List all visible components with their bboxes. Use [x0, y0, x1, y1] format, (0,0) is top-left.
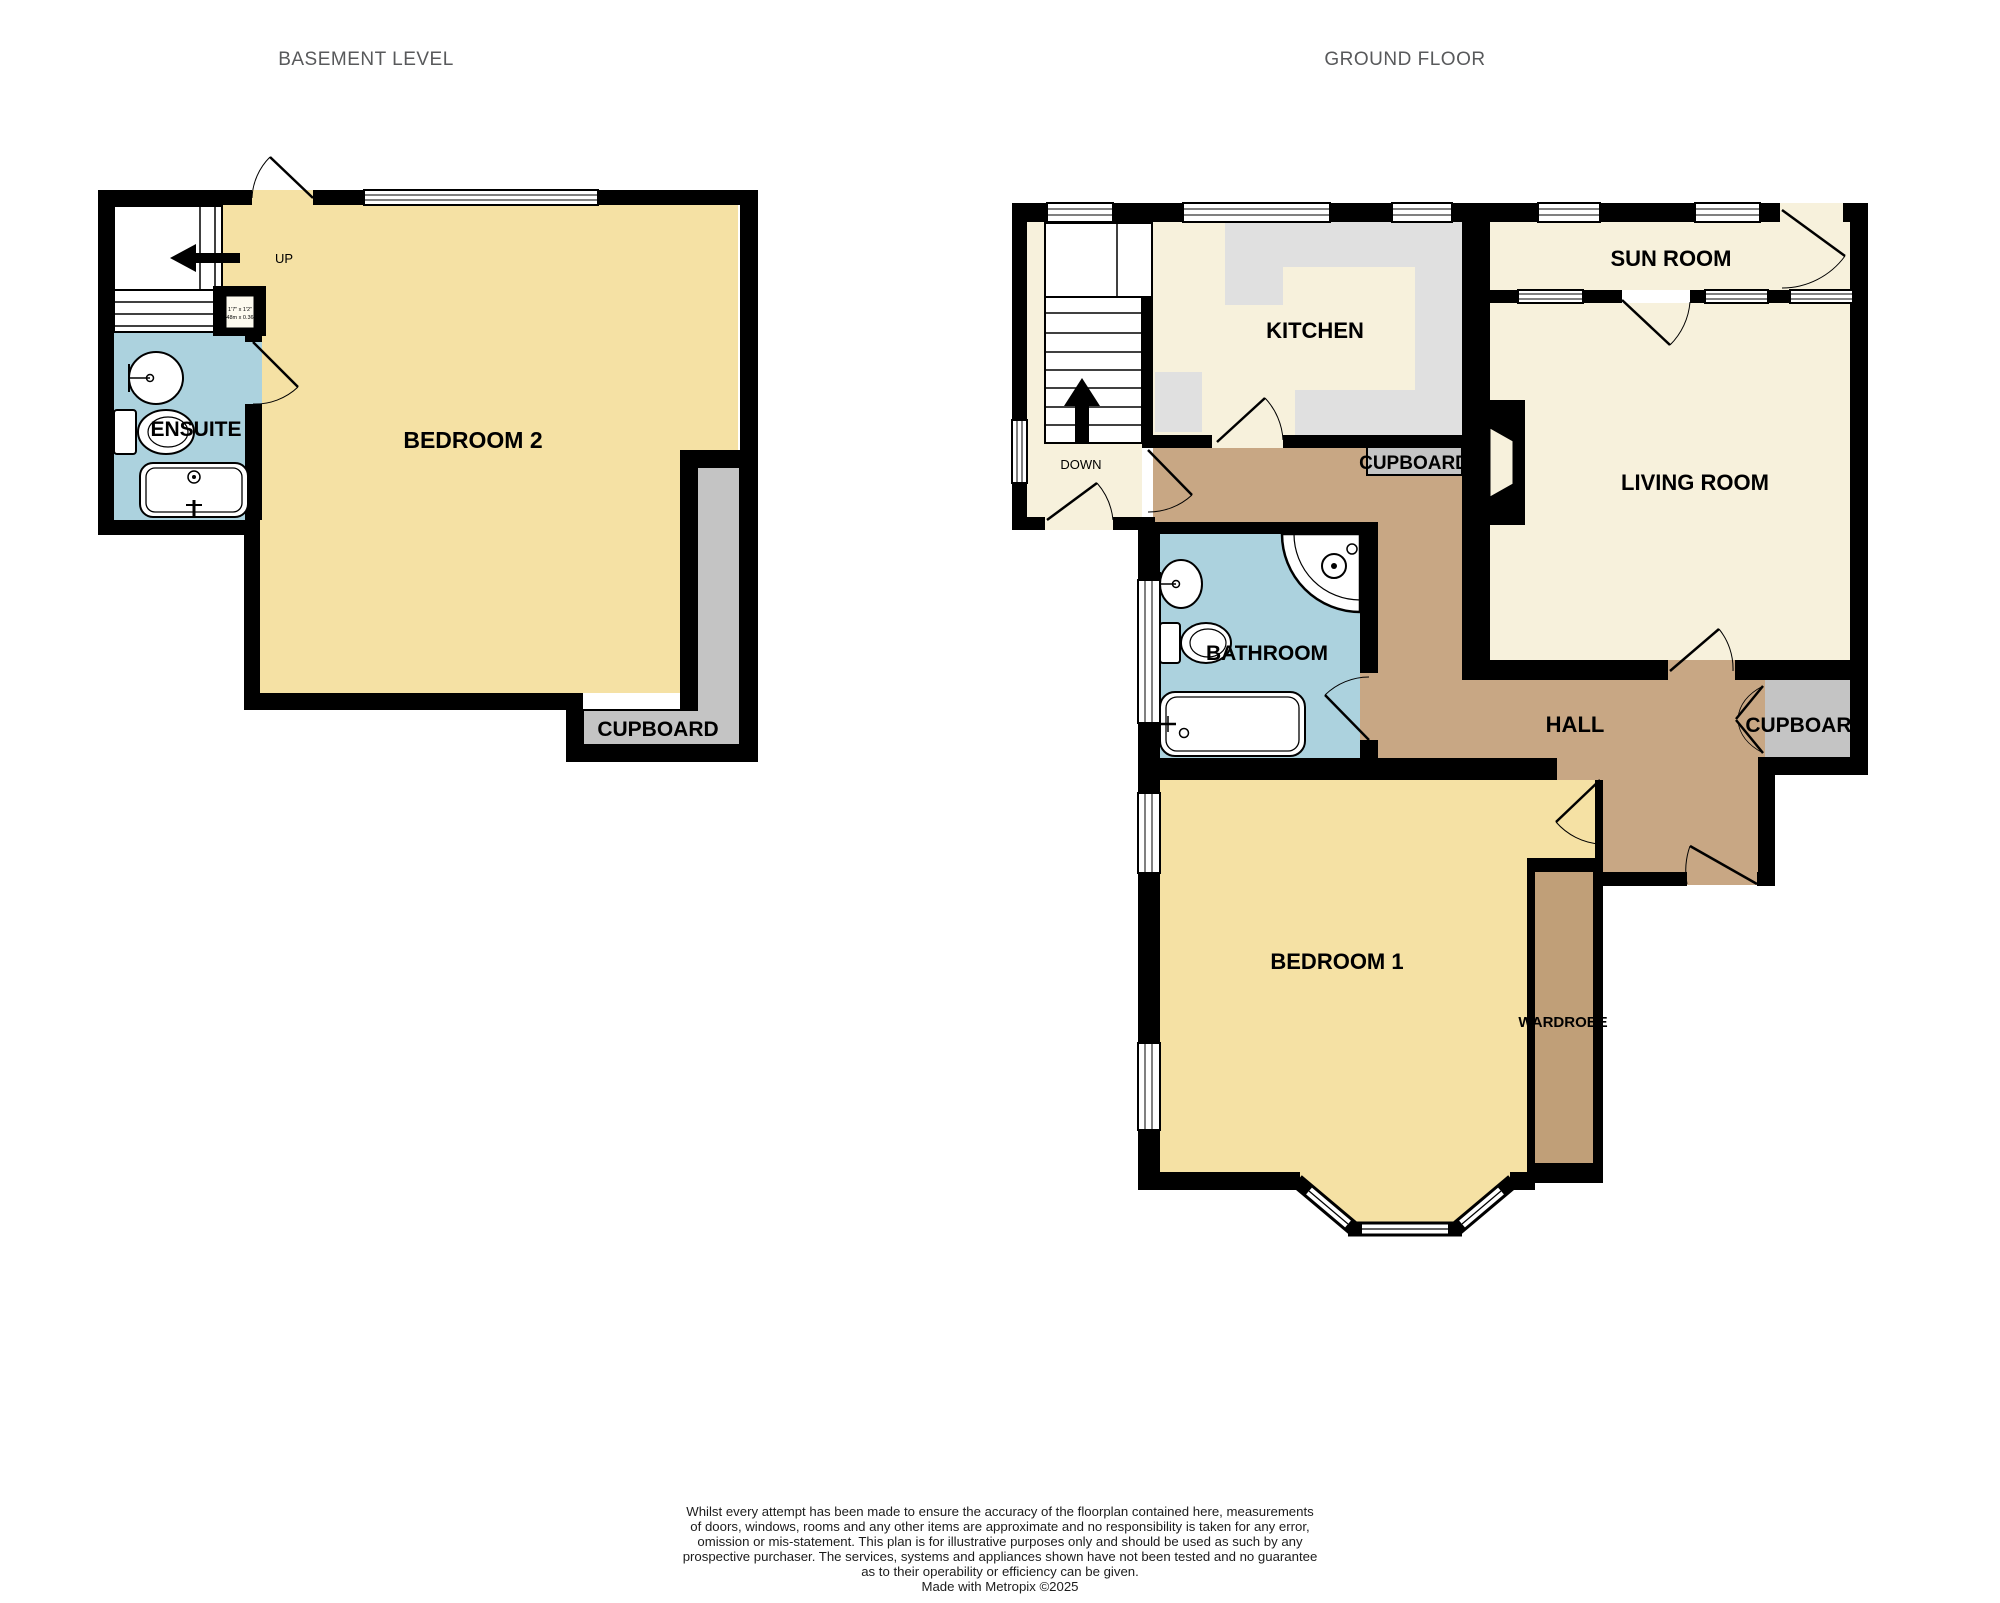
sink-icon	[129, 352, 183, 404]
ground-floor-title: GROUND FLOOR	[1195, 49, 1615, 71]
disclaimer-line: prospective purchaser. The services, sys…	[0, 1549, 2000, 1564]
sunroom-label: SUN ROOM	[1611, 246, 1732, 271]
disclaimer: Whilst every attempt has been made to en…	[0, 1504, 2000, 1594]
bedroom2-door-gap-floor	[252, 190, 313, 207]
window-bedroom1-2	[1138, 1043, 1160, 1130]
ground-floor-plan: DOWN	[1012, 203, 1868, 1231]
basement-store-void: 1'7" x 1'2" 0.48m x 0.36m	[213, 286, 266, 336]
window-bedroom1-1	[1138, 793, 1160, 873]
disclaimer-line: Whilst every attempt has been made to en…	[0, 1504, 2000, 1519]
hall-label: HALL	[1546, 712, 1605, 737]
sunroom-door-gap-floor	[1780, 203, 1843, 222]
ensuite-label: ENSUITE	[150, 418, 241, 441]
up-label: UP	[275, 251, 293, 266]
store-dim-metric: 0.48m x 0.36m	[222, 315, 259, 321]
bedroom1-label: BEDROOM 1	[1270, 949, 1403, 974]
down-label: DOWN	[1060, 457, 1101, 472]
livingroom-label: LIVING ROOM	[1621, 470, 1769, 495]
disclaimer-made-with: Made with Metropix ©2025	[0, 1579, 2000, 1594]
window-bathroom	[1138, 580, 1160, 723]
ground-stairs: DOWN	[1045, 223, 1152, 472]
window-sunroom-top-1	[1538, 203, 1600, 222]
floorplan-canvas: UP 1'7" x 1'2" 0.48m x 0.36m	[0, 0, 2000, 1603]
floorplan-page: BASEMENT LEVEL GROUND FLOOR	[0, 0, 2000, 1603]
bathroom-label: BATHROOM	[1206, 642, 1328, 665]
window-sunroom-bottom-2	[1705, 290, 1768, 303]
bathtub-icon	[140, 463, 248, 517]
window-entry-left	[1012, 420, 1027, 483]
disclaimer-line: omission or mis-statement. This plan is …	[0, 1534, 2000, 1549]
window-sunroom-top-2	[1695, 203, 1760, 222]
bedroom1-ne-door-gap-floor	[1557, 758, 1603, 780]
window-sunroom-bottom-3	[1790, 290, 1853, 303]
window-top-3	[1392, 203, 1452, 222]
basement-plan: UP 1'7" x 1'2" 0.48m x 0.36m	[98, 157, 758, 762]
window-top-1	[1047, 203, 1113, 222]
window-sunroom-bottom-1	[1518, 290, 1583, 303]
basement-title: BASEMENT LEVEL	[156, 49, 576, 71]
front-door-gap-floor	[1045, 517, 1113, 530]
bedroom2-label: BEDROOM 2	[403, 427, 542, 453]
disclaimer-line: as to their operability or efficiency ca…	[0, 1564, 2000, 1579]
bathroom-bathtub-icon	[1160, 692, 1305, 756]
store-dim-imperial: 1'7" x 1'2"	[228, 307, 252, 313]
kitchen-cupboard-label: CUPBOARD	[1359, 453, 1469, 474]
basement-cupboard-label: CUPBOARD	[597, 718, 718, 741]
bedroom2-window	[364, 190, 598, 205]
bathroom-door-gap-floor	[1360, 673, 1378, 740]
wardrobe-label: WARDROBE	[1518, 1014, 1607, 1031]
hall-cupboard-label: CUPBOARD	[1745, 714, 1866, 737]
disclaimer-line: of doors, windows, rooms and any other i…	[0, 1519, 2000, 1534]
bathroom-sink-icon	[1160, 560, 1202, 608]
kitchen-label: KITCHEN	[1266, 318, 1364, 343]
window-top-2	[1183, 203, 1330, 222]
